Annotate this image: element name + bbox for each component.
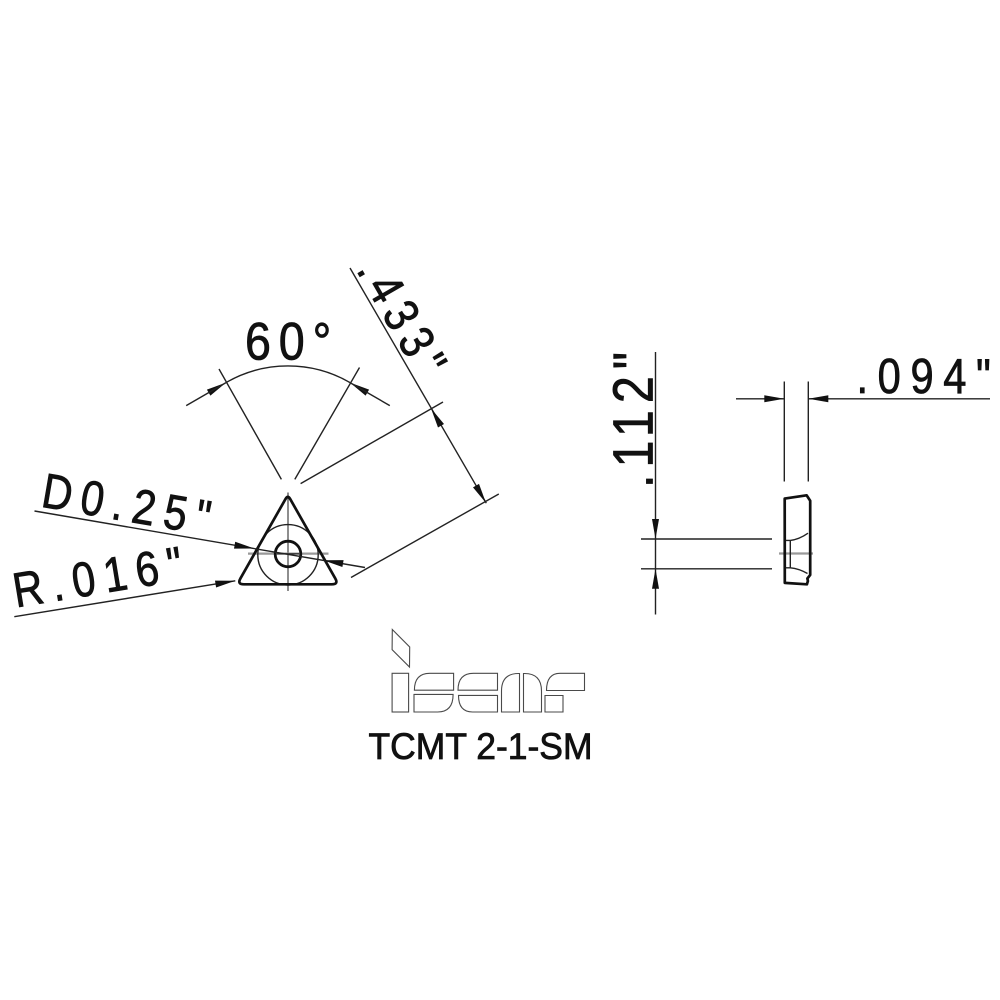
svg-text:TCMT 2-1-SM: TCMT 2-1-SM [369, 725, 593, 767]
svg-text:60°: 60° [245, 312, 331, 371]
